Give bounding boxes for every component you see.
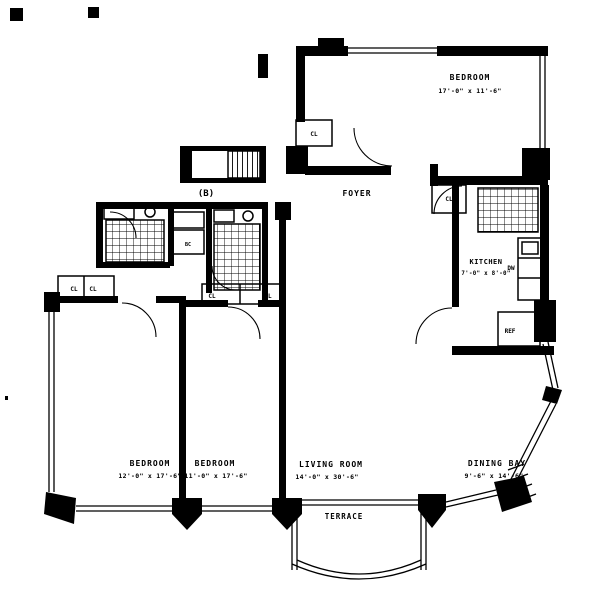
window-top: [348, 48, 437, 53]
column: [542, 386, 562, 404]
wall: [96, 202, 103, 266]
window-bedroom-mid: [202, 506, 272, 511]
closet-label: CL: [445, 196, 453, 203]
column: [318, 38, 344, 56]
bathroom-tile: [106, 220, 164, 262]
dining-bay-label: DINING BAY: [468, 459, 526, 468]
counter-divisions: [518, 258, 542, 278]
wall: [96, 262, 170, 268]
wall: [437, 46, 548, 56]
terrace-label: TERRACE: [325, 512, 364, 521]
window-right-upper: [540, 56, 545, 148]
door-arc-kitchen: [416, 308, 452, 344]
bedroom-left-dims: 12'-0" x 17'-6": [118, 472, 181, 480]
bathtub: [214, 210, 234, 222]
terrace-curve: [292, 560, 426, 579]
party-wall-stub: [88, 7, 99, 18]
closet-label: CL: [70, 286, 78, 293]
closet-label: CL: [310, 131, 318, 138]
window-living: [302, 500, 418, 505]
dishwasher-label: DW: [507, 265, 515, 272]
wall: [260, 146, 266, 183]
bathroom-tile: [214, 224, 260, 290]
wall: [452, 185, 459, 307]
walls-and-columns: [5, 7, 562, 530]
wall: [430, 176, 548, 185]
door-arc-bedroom-mid: [228, 307, 260, 339]
vestibule-shelves: [228, 151, 260, 178]
floor-plan-canvas: BEDROOM 17'-0" x 11'-6" FOYER (B) CL CL …: [0, 0, 600, 604]
kitchen-tile: [478, 188, 538, 232]
wall: [180, 146, 192, 183]
unit-letter-label: (B): [198, 189, 214, 199]
kitchen-label: KITCHEN: [469, 258, 502, 266]
bath-closet-label: BC: [185, 242, 191, 248]
wall: [296, 56, 305, 122]
floor-plan-page: BEDROOM 17'-0" x 11'-6" FOYER (B) CL CL …: [0, 0, 600, 604]
bath-closet-box: [172, 212, 204, 228]
window-left: [49, 312, 54, 492]
door-arc-bedroom-left: [122, 303, 156, 337]
wall: [452, 346, 554, 355]
party-wall-stub: [10, 8, 23, 21]
column: [172, 498, 202, 530]
living-room-dims: 14'-0" x 30'-6": [295, 473, 358, 481]
foyer-label: FOYER: [342, 189, 371, 198]
bedroom-left-label: BEDROOM: [130, 459, 171, 468]
closet-label: CL: [264, 293, 272, 300]
basin: [243, 211, 253, 221]
stray-mark: [5, 396, 8, 400]
column: [275, 202, 291, 220]
closet-label: CL: [208, 293, 216, 300]
column: [286, 146, 308, 174]
column: [44, 492, 76, 524]
bedroom-top-dims: 17'-0" x 11'-6": [438, 87, 501, 95]
dining-bay-dims: 9'-6" x 14'-6": [465, 472, 524, 480]
column: [418, 494, 446, 528]
closet-label: CL: [89, 286, 97, 293]
column: [494, 476, 532, 512]
wall: [305, 166, 391, 175]
window-bedroom-left: [76, 506, 172, 511]
door-arc-bedroom-top: [354, 128, 392, 166]
refrigerator-label: REF: [505, 328, 516, 335]
bedroom-mid-dims: 11'-0" x 17'-6": [184, 472, 247, 480]
column: [534, 300, 556, 342]
wall: [279, 218, 286, 508]
window-dining-bottom: [446, 490, 498, 507]
wall: [206, 209, 212, 293]
bedroom-top-label: BEDROOM: [450, 73, 491, 82]
wall: [262, 202, 268, 304]
living-room-label: LIVING ROOM: [299, 460, 363, 469]
wall: [168, 209, 174, 266]
column: [522, 148, 550, 180]
wall-stub: [258, 54, 268, 78]
bedroom-mid-label: BEDROOM: [195, 459, 236, 468]
sink: [522, 242, 538, 254]
windows: [49, 48, 558, 579]
kitchen-dims: 7'-0" x 8'-0": [461, 271, 510, 277]
